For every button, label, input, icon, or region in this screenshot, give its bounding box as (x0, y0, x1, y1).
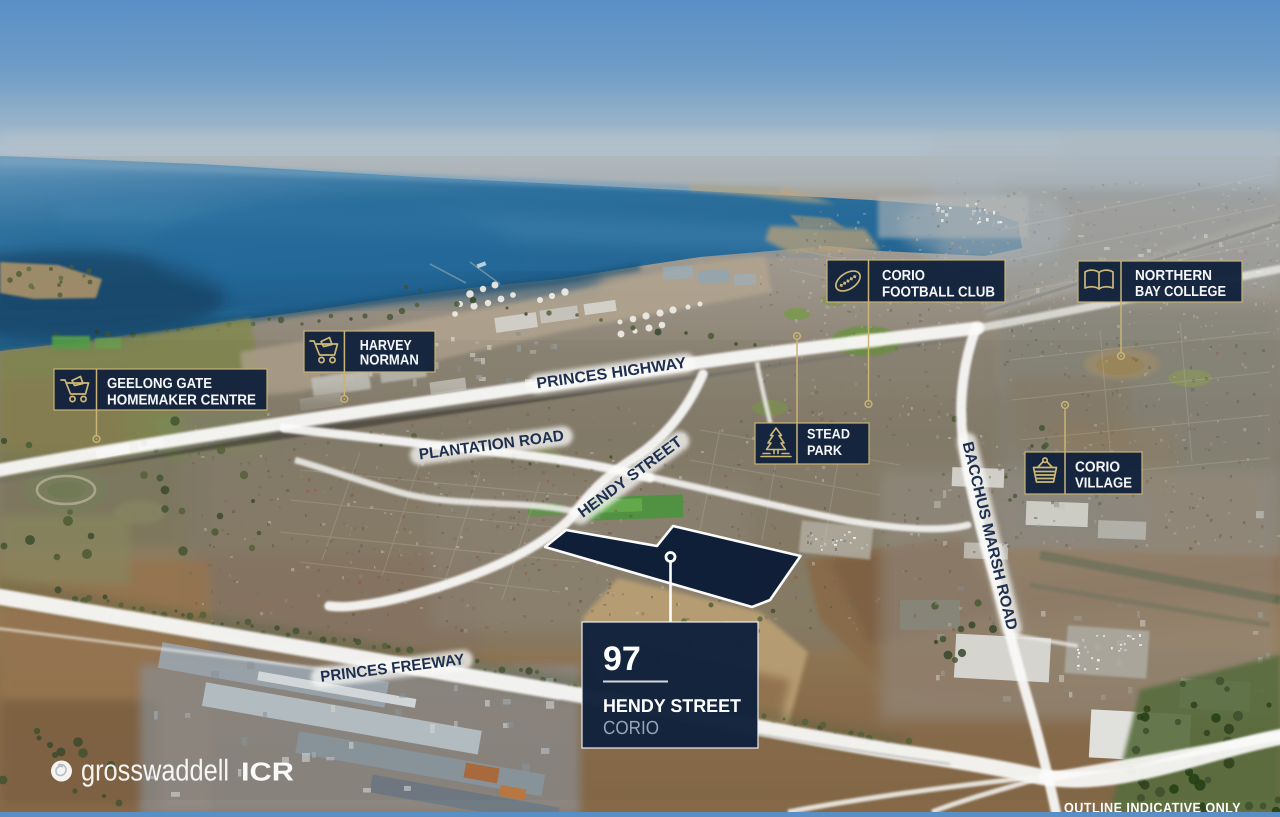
svg-text:NORMAN: NORMAN (360, 353, 419, 369)
svg-text:STEAD: STEAD (807, 427, 850, 442)
svg-text:ICR: ICR (241, 757, 294, 787)
svg-text:HENDY STREET: HENDY STREET (603, 695, 742, 716)
svg-text:CORIO: CORIO (603, 718, 659, 739)
svg-text:CORIO: CORIO (1075, 460, 1120, 476)
svg-text:OUTLINE INDICATIVE ONLY: OUTLINE INDICATIVE ONLY (1064, 800, 1241, 813)
svg-text:HOMEMAKER CENTRE: HOMEMAKER CENTRE (107, 393, 256, 409)
svg-text:97: 97 (603, 640, 641, 678)
svg-text:CORIO: CORIO (882, 268, 925, 284)
svg-text:VILLAGE: VILLAGE (1075, 476, 1132, 492)
svg-text:FOOTBALL CLUB: FOOTBALL CLUB (882, 285, 995, 301)
svg-text:BAY COLLEGE: BAY COLLEGE (1135, 284, 1226, 300)
svg-text:grosswaddell: grosswaddell (81, 755, 229, 788)
svg-text:NORTHERN: NORTHERN (1135, 268, 1212, 284)
svg-text:PARK: PARK (807, 443, 842, 458)
svg-text:GEELONG GATE: GEELONG GATE (107, 376, 212, 392)
